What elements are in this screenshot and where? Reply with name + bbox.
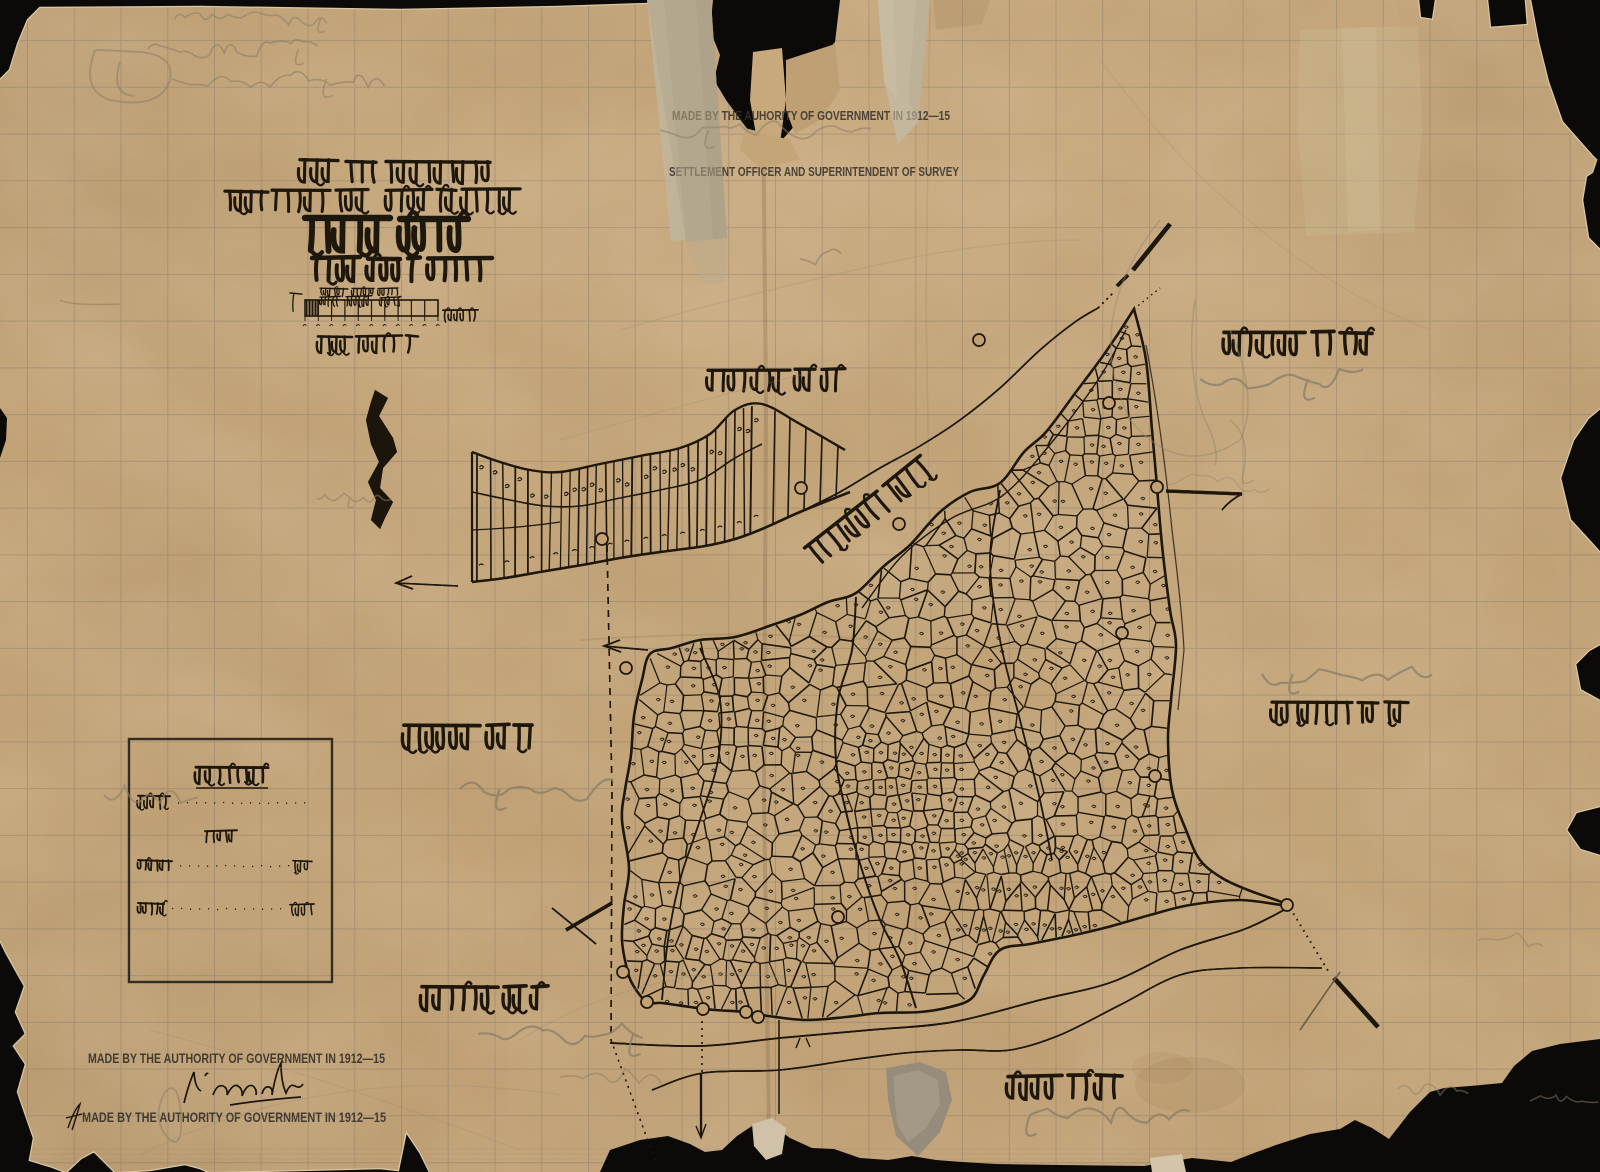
svg-text:MADE BY THE AUTHORITY OF GOVER: MADE BY THE AUTHORITY OF GOVERNMENT IN 1…	[88, 1050, 385, 1066]
